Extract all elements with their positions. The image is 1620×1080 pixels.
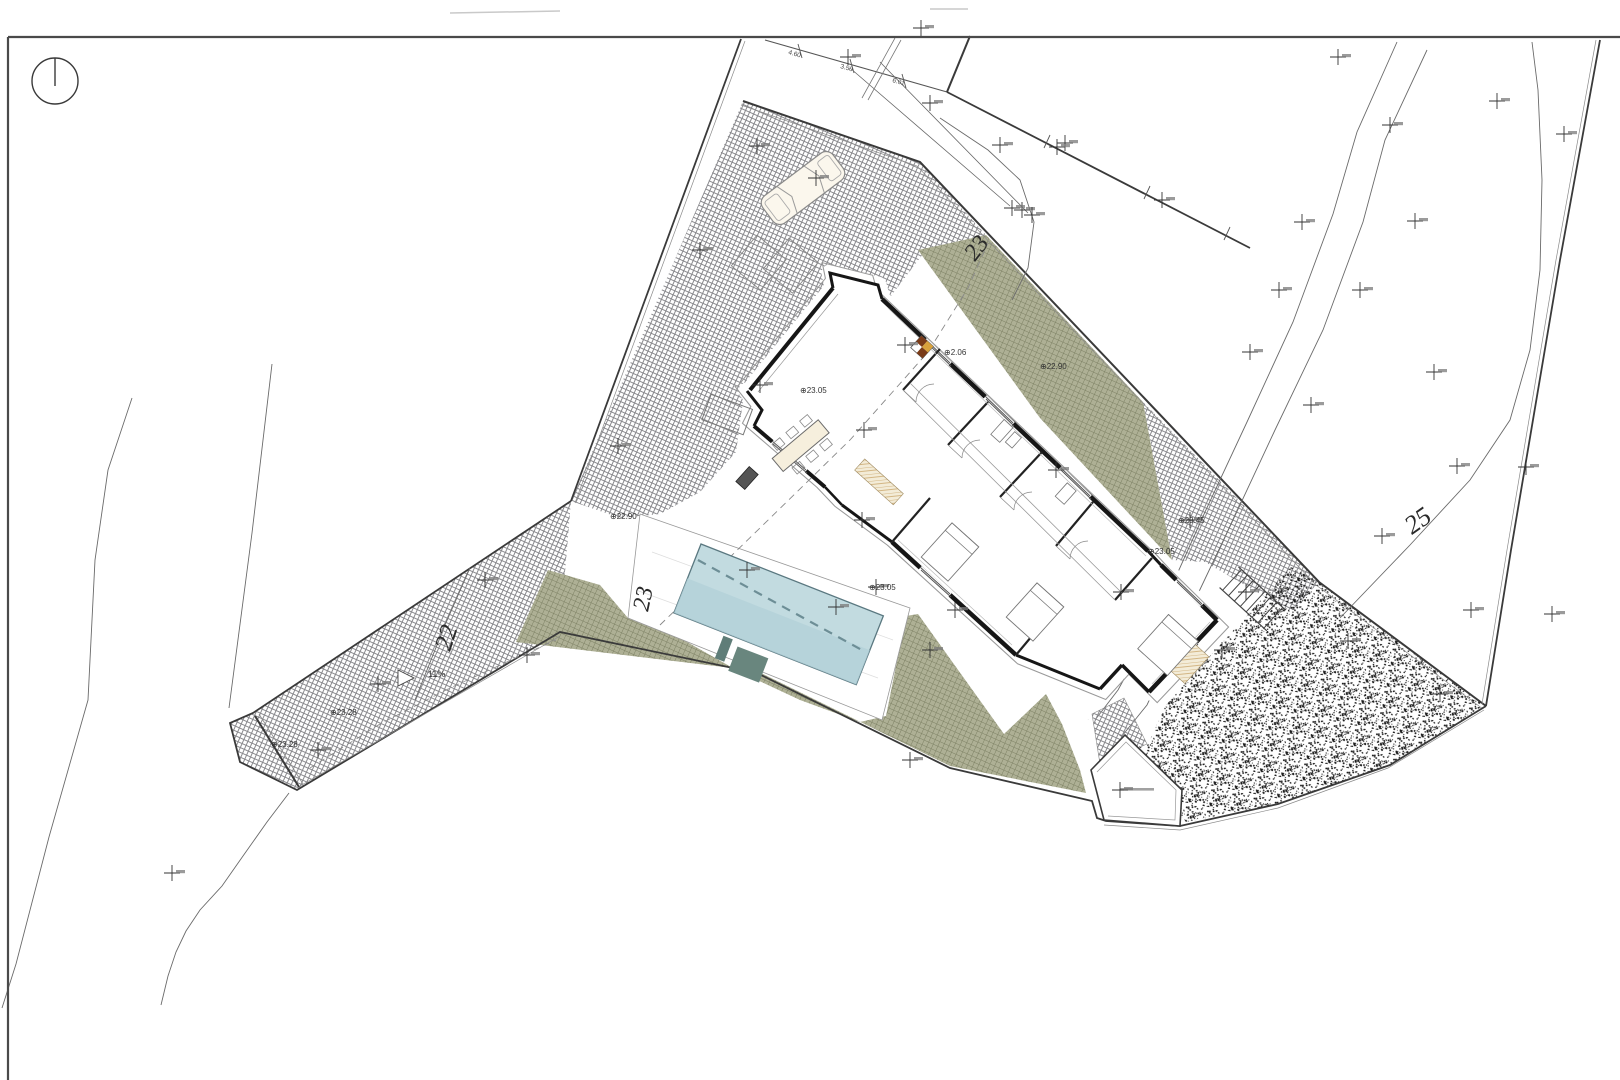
svg-text:⊕23.28: ⊕23.28 (271, 740, 298, 749)
svg-text:⊕23.05: ⊕23.05 (1148, 547, 1175, 556)
svg-text:⊕23.28: ⊕23.28 (330, 708, 357, 717)
svg-text:⊕23.45: ⊕23.45 (1178, 516, 1205, 525)
svg-text:11%: 11% (428, 669, 445, 679)
svg-text:⊕22.90: ⊕22.90 (1040, 362, 1067, 371)
svg-text:⊕22.90: ⊕22.90 (610, 512, 637, 521)
svg-text:⊕23.05: ⊕23.05 (800, 386, 827, 395)
svg-text:⊕23.05: ⊕23.05 (869, 583, 896, 592)
svg-text:⊕2.06: ⊕2.06 (944, 348, 967, 357)
